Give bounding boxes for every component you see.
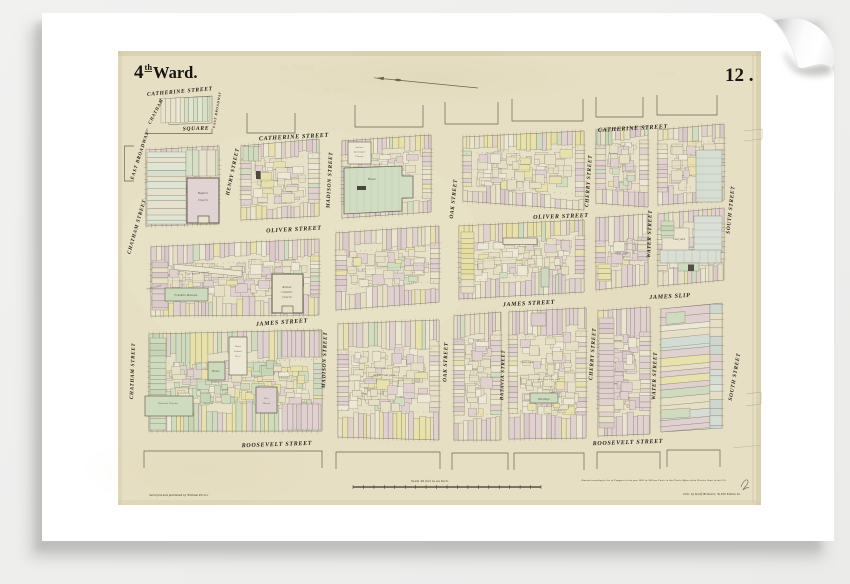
svg-text:4: 4 — [134, 62, 144, 83]
svg-text:Ward.: Ward. — [153, 63, 197, 82]
svg-text:12 .: 12 . — [725, 65, 754, 86]
svg-text:Surveyed and published by Will: Surveyed and published by William Perris… — [149, 493, 209, 497]
svg-text:Scale 40 feet to an Inch.: Scale 40 feet to an Inch. — [411, 479, 449, 483]
svg-text:Entered according to Act of Co: Entered according to Act of Congress in … — [581, 479, 727, 482]
svg-text:SQUARE: SQUARE — [183, 126, 210, 133]
svg-text:th: th — [145, 62, 153, 72]
